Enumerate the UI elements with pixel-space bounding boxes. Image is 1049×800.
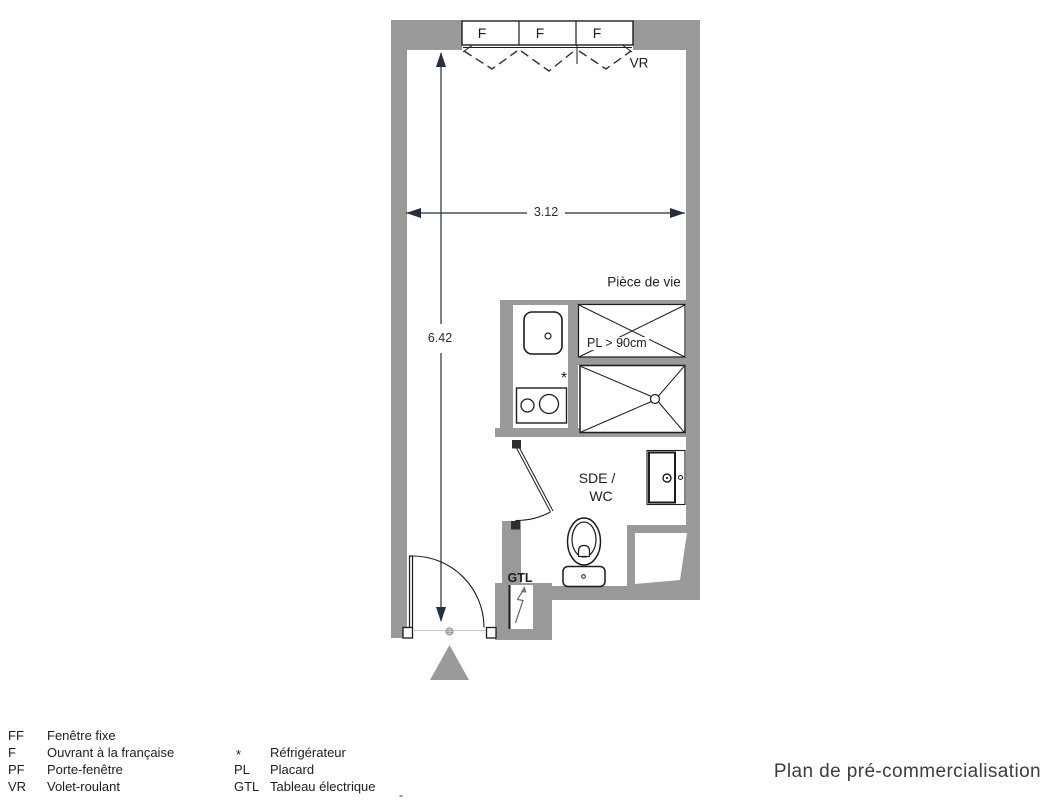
- electrical-panel-label: GTL: [508, 572, 533, 585]
- toilet: [563, 518, 605, 587]
- legend-abbr-ff: FF: [8, 729, 24, 742]
- legend-label-gtl: Tableau électrique: [270, 780, 376, 793]
- window-panel-label-1: F: [478, 26, 487, 40]
- bathroom-door: [511, 440, 553, 530]
- legend-label-fridge: Réfrigérateur: [270, 746, 346, 759]
- closet-label: PL > 90cm: [585, 337, 649, 350]
- shower: [580, 366, 685, 433]
- plan-title: Plan de pré-commercialisation: [774, 761, 1041, 783]
- fridge-symbol: *: [561, 371, 567, 387]
- washbasin-cabinet: [647, 451, 685, 505]
- window: [462, 21, 633, 71]
- legend-label-pf: Porte-fenêtre: [47, 763, 123, 776]
- floor-plan-page: F F F VR 3.12 6.42 Pièce de vie PL > 90c…: [0, 0, 1049, 800]
- legend-label-f: Ouvrant à la française: [47, 746, 174, 759]
- electrical-panel: [509, 585, 533, 629]
- legend-label-ff: Fenêtre fixe: [47, 729, 116, 742]
- legend-abbr-pf: PF: [8, 763, 25, 776]
- legend-label-vr: Volet-roulant: [47, 780, 120, 793]
- floor-plan-drawing: [0, 0, 1049, 800]
- legend-abbr-vr: VR: [8, 780, 26, 793]
- legend-abbr-pl: PL: [234, 763, 250, 776]
- legend-label-pl: Placard: [270, 763, 314, 776]
- window-panel-label-3: F: [593, 26, 602, 40]
- duct-niche: [635, 533, 687, 584]
- living-room-label: Pièce de vie: [607, 275, 681, 289]
- window-panel-label-2: F: [536, 26, 545, 40]
- entry-door: [403, 556, 496, 638]
- stray-mark: -: [399, 788, 403, 800]
- shutter-label: VR: [630, 56, 649, 70]
- legend-abbr-f: F: [8, 746, 16, 759]
- entrance-triangle: [430, 645, 469, 680]
- legend-abbr-gtl: GTL: [234, 780, 259, 793]
- height-dimension: 6.42: [428, 332, 452, 345]
- cooktop: [517, 388, 567, 423]
- bathroom-label-line1: SDE /: [579, 471, 616, 485]
- bathroom-label-line2: WC: [589, 489, 612, 503]
- width-dimension: 3.12: [534, 206, 558, 219]
- legend-abbr-fridge: *: [236, 748, 241, 761]
- kitchen-sink: [524, 312, 562, 354]
